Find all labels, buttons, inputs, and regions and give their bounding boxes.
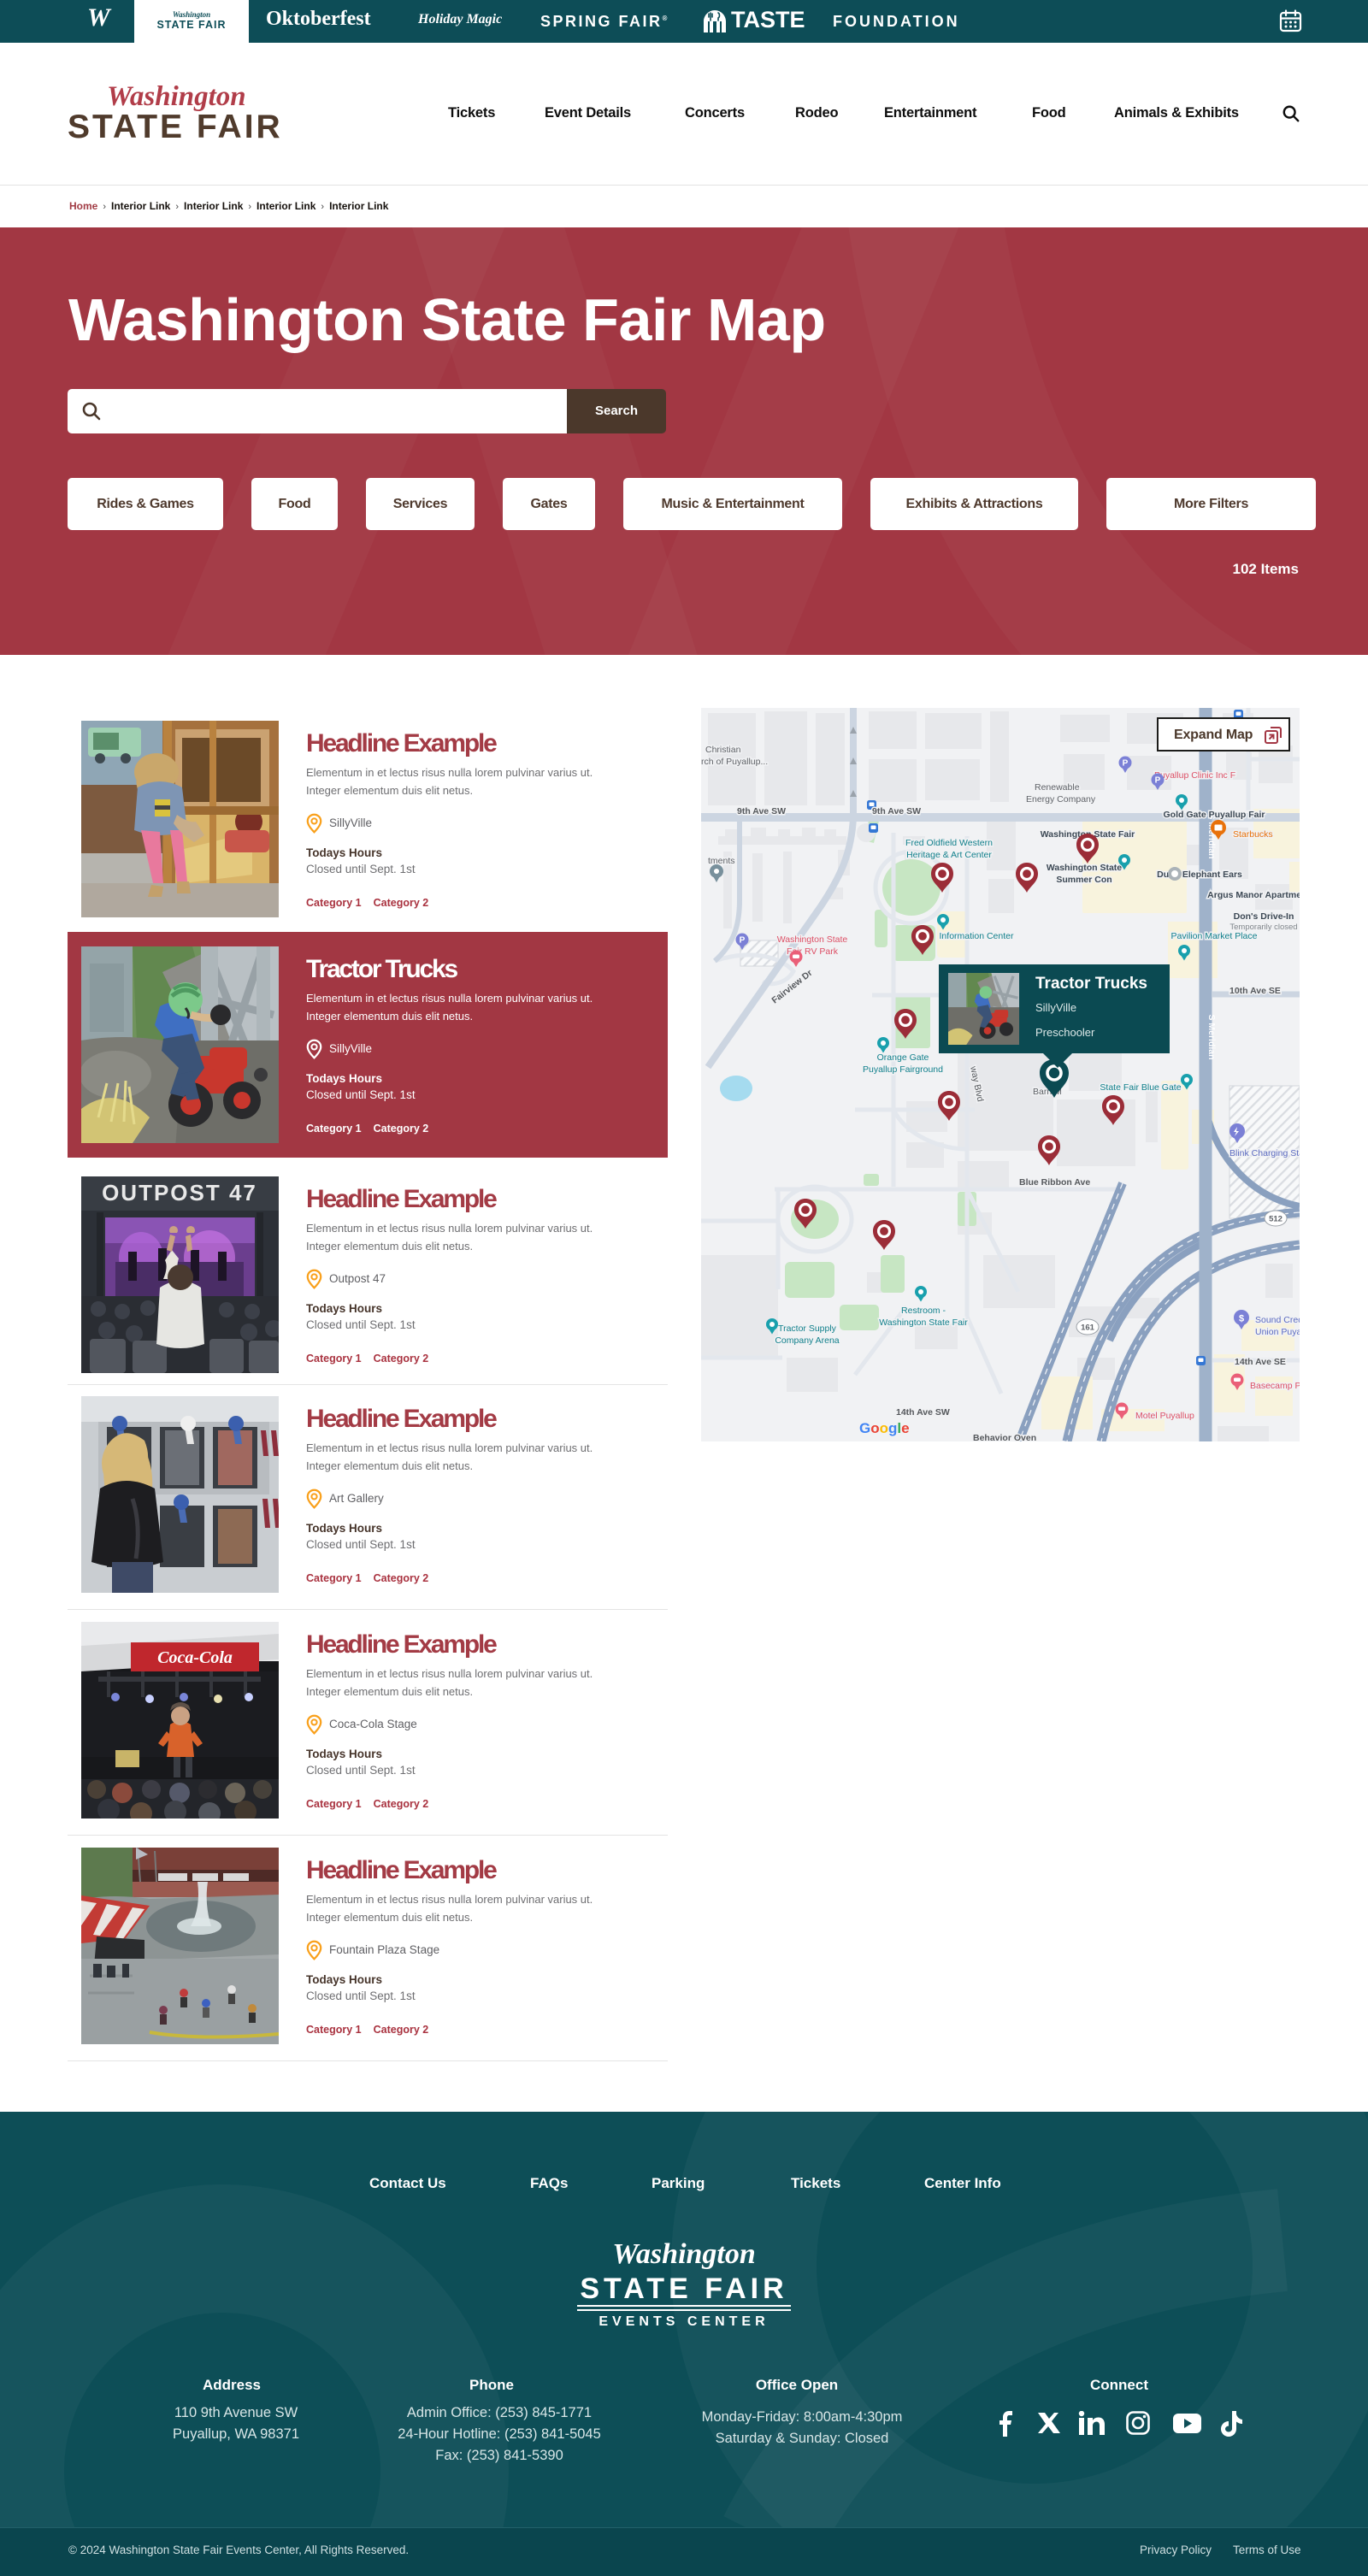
svg-text:Pavilion Market Place: Pavilion Market Place bbox=[1171, 931, 1258, 941]
svg-text:Motel Puyallup: Motel Puyallup bbox=[1135, 1411, 1194, 1421]
svg-text:OUTPOST 47: OUTPOST 47 bbox=[102, 1180, 257, 1205]
svg-text:S Meridian: S Meridian bbox=[1206, 1014, 1217, 1059]
svg-text:State Fair Blue Gate: State Fair Blue Gate bbox=[1100, 1082, 1181, 1093]
svg-text:9th Ave SW: 9th Ave SW bbox=[737, 806, 786, 816]
svg-text:Energy Company: Energy Company bbox=[1026, 794, 1096, 805]
svg-text:S Meridian: S Meridian bbox=[1206, 813, 1217, 858]
svg-text:Fred Oldfield Western: Fred Oldfield Western bbox=[905, 838, 993, 848]
svg-text:Behavior Oven: Behavior Oven bbox=[973, 1433, 1036, 1441]
svg-text:Sound Cred: Sound Cred bbox=[1255, 1315, 1300, 1325]
svg-text:Union Puya: Union Puya bbox=[1255, 1327, 1300, 1337]
svg-text:512: 512 bbox=[1269, 1215, 1282, 1224]
svg-text:Washington State: Washington State bbox=[777, 934, 848, 945]
svg-text:rch of Puyallup...: rch of Puyallup... bbox=[701, 757, 768, 767]
svg-text:Basecamp Puy: Basecamp Puy bbox=[1250, 1381, 1300, 1391]
svg-text:Heritage & Art Center: Heritage & Art Center bbox=[906, 850, 992, 860]
svg-text:10th Ave SE: 10th Ave SE bbox=[1229, 986, 1281, 996]
svg-text:Puyallup Clinic Inc F: Puyallup Clinic Inc F bbox=[1154, 770, 1235, 781]
svg-text:Don's Drive-In: Don's Drive-In bbox=[1234, 911, 1294, 922]
svg-text:14th Ave SE: 14th Ave SE bbox=[1235, 1357, 1286, 1367]
svg-text:$: $ bbox=[1239, 1314, 1244, 1324]
svg-text:Restroom -: Restroom - bbox=[901, 1306, 946, 1316]
svg-text:Blink Charging Statio: Blink Charging Statio bbox=[1229, 1148, 1300, 1158]
svg-text:Tractor Supply: Tractor Supply bbox=[778, 1323, 837, 1334]
svg-text:Gold Gate Puyallup Fair: Gold Gate Puyallup Fair bbox=[1163, 810, 1265, 820]
svg-text:Blue Ribbon Ave: Blue Ribbon Ave bbox=[1019, 1177, 1090, 1188]
svg-text:Coca-Cola: Coca-Cola bbox=[157, 1648, 233, 1667]
svg-text:Google: Google bbox=[859, 1420, 910, 1436]
svg-text:161: 161 bbox=[1081, 1323, 1095, 1333]
svg-text:Summer Con: Summer Con bbox=[1056, 875, 1111, 885]
svg-text:Washington State Fair: Washington State Fair bbox=[879, 1317, 968, 1328]
svg-text:14th Ave SW: 14th Ave SW bbox=[896, 1407, 950, 1418]
svg-text:Washington State: Washington State bbox=[1047, 863, 1122, 873]
svg-text:tments: tments bbox=[708, 856, 735, 866]
svg-text:Temporarily closed: Temporarily closed bbox=[1229, 923, 1297, 932]
svg-text:Company Arena: Company Arena bbox=[775, 1335, 839, 1346]
svg-text:Renewable: Renewable bbox=[1035, 782, 1080, 793]
svg-text:Orange Gate: Orange Gate bbox=[877, 1052, 929, 1063]
svg-text:Puyallup Fairground: Puyallup Fairground bbox=[863, 1064, 943, 1075]
svg-text:Starbucks: Starbucks bbox=[1233, 829, 1273, 840]
svg-text:Information Center: Information Center bbox=[940, 931, 1014, 941]
svg-text:Argus Manor Apartments: Argus Manor Apartments bbox=[1207, 890, 1300, 900]
svg-text:9th Ave SW: 9th Ave SW bbox=[872, 806, 921, 816]
svg-text:Christian: Christian bbox=[705, 745, 741, 755]
